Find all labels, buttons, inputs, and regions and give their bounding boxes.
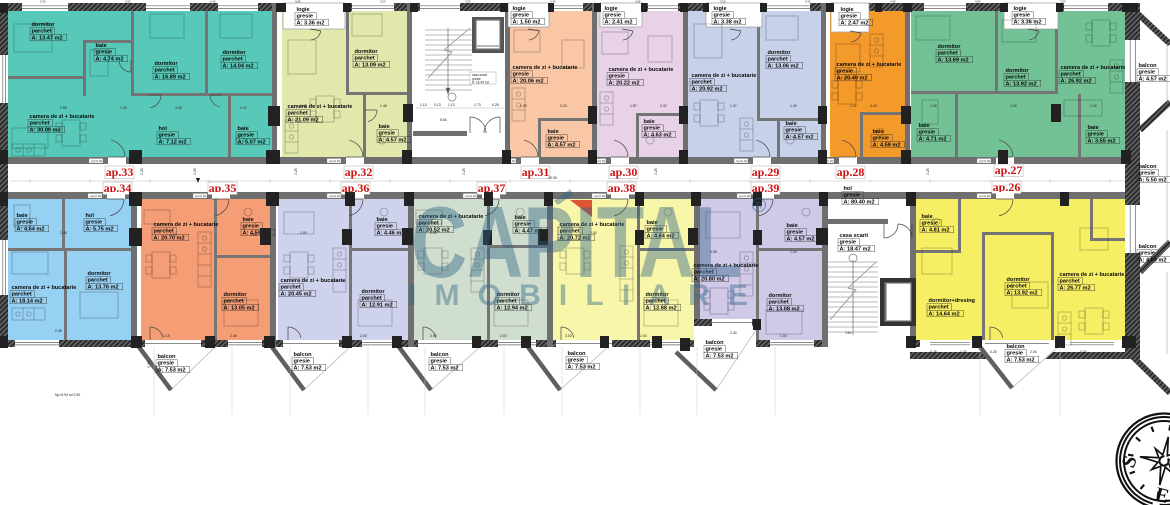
svg-text:1.73: 1.73 xyxy=(474,103,481,107)
svg-text:A: 13.76 m2: A: 13.76 m2 xyxy=(88,284,119,290)
svg-text:0.25: 0.25 xyxy=(294,168,298,175)
svg-text:balcon: balcon xyxy=(1139,164,1158,170)
svg-text:A: 4.57 m2: A: 4.57 m2 xyxy=(786,134,814,140)
svg-text:Vlib: Vlib xyxy=(845,330,852,335)
svg-text:gresie: gresie xyxy=(1088,132,1104,138)
svg-text:A: 7.53 m2: A: 7.53 m2 xyxy=(431,365,459,371)
svg-text:gresie: gresie xyxy=(706,347,722,353)
svg-text:parchet: parchet xyxy=(288,111,308,117)
svg-text:gresie: gresie xyxy=(159,133,175,139)
svg-text:baie: baie xyxy=(17,213,28,219)
svg-text:gresie: gresie xyxy=(644,126,660,132)
svg-text:1.49: 1.49 xyxy=(790,104,797,108)
svg-text:gresie: gresie xyxy=(17,220,33,226)
svg-text:A: 13.08 m2: A: 13.08 m2 xyxy=(769,306,800,312)
svg-text:Ap=0.90: Ap=0.90 xyxy=(329,194,341,198)
svg-text:1.02: 1.02 xyxy=(960,350,967,354)
svg-text:dormitor: dormitor xyxy=(938,44,962,50)
svg-text:A: 20.06 m2: A: 20.06 m2 xyxy=(513,78,544,84)
svg-text:ap.33: ap.33 xyxy=(106,165,134,179)
svg-text:0.23: 0.23 xyxy=(560,104,567,108)
svg-text:gresie: gresie xyxy=(1139,251,1155,257)
svg-text:balcon: balcon xyxy=(158,354,177,360)
svg-text:1.47: 1.47 xyxy=(730,104,737,108)
svg-text:parchet: parchet xyxy=(938,51,958,57)
svg-text:0.25: 0.25 xyxy=(990,350,997,354)
svg-text:gresie: gresie xyxy=(294,359,310,365)
svg-text:balcon: balcon xyxy=(568,351,587,357)
svg-text:A: 3.55 m2: A: 3.55 m2 xyxy=(1088,138,1116,144)
svg-text:2.42: 2.42 xyxy=(660,104,667,108)
svg-text:ap.28: ap.28 xyxy=(837,165,865,179)
svg-text:dormitor: dormitor xyxy=(223,50,247,56)
svg-text:A: 20.22 m2: A: 20.22 m2 xyxy=(609,80,640,86)
svg-text:gresie: gresie xyxy=(297,14,313,20)
svg-text:A: 26.92 m2: A: 26.92 m2 xyxy=(1061,78,1092,84)
svg-text:A: 13.92 m2: A: 13.92 m2 xyxy=(1007,290,1038,296)
svg-text:parchet: parchet xyxy=(30,121,50,127)
svg-text:baie: baie xyxy=(96,43,107,49)
svg-text:dormitor: dormitor xyxy=(768,50,792,56)
svg-text:baie: baie xyxy=(873,129,884,135)
svg-text:baie: baie xyxy=(922,214,933,220)
svg-text:parchet: parchet xyxy=(768,57,788,63)
svg-text:parchet: parchet xyxy=(692,80,712,86)
svg-text:0.25: 0.25 xyxy=(140,168,144,175)
svg-text:ap.27: ap.27 xyxy=(995,163,1023,177)
svg-text:camera de zi + bucatarie: camera de zi + bucatarie xyxy=(30,114,95,120)
svg-text:ap.32: ap.32 xyxy=(345,165,373,179)
svg-text:parchet: parchet xyxy=(32,29,52,35)
svg-text:0.25: 0.25 xyxy=(492,103,499,107)
svg-text:A: 14.04 m2: A: 14.04 m2 xyxy=(223,63,254,69)
svg-text:hol: hol xyxy=(844,186,853,192)
svg-text:1.87: 1.87 xyxy=(630,104,637,108)
svg-text:gresie: gresie xyxy=(1007,351,1023,357)
svg-text:dormitor: dormitor xyxy=(155,61,179,67)
svg-text:gresie: gresie xyxy=(786,128,802,134)
svg-text:hol: hol xyxy=(86,213,95,219)
svg-text:dormitor: dormitor xyxy=(224,292,248,298)
svg-text:A: 7.12 m2: A: 7.12 m2 xyxy=(159,139,187,145)
svg-text:2.43: 2.43 xyxy=(870,104,877,108)
svg-text:baie: baie xyxy=(548,129,559,135)
svg-text:ap.30: ap.30 xyxy=(610,165,638,179)
svg-text:A: 4.57 m2: A: 4.57 m2 xyxy=(787,236,815,242)
svg-text:A: 1.50 m2: A: 1.50 m2 xyxy=(513,19,541,25)
svg-text:2.48: 2.48 xyxy=(55,329,62,333)
svg-text:Ap=0.90: Ap=0.90 xyxy=(979,159,991,163)
svg-text:1.13: 1.13 xyxy=(448,103,455,107)
svg-text:A: 2.41 m2: A: 2.41 m2 xyxy=(605,19,633,25)
svg-text:Ap=0.90: Ap=0.90 xyxy=(329,159,341,163)
svg-text:gresie: gresie xyxy=(1014,13,1030,19)
svg-text:balcon: balcon xyxy=(294,352,313,358)
svg-text:gresie: gresie xyxy=(919,130,935,136)
svg-text:gresie: gresie xyxy=(609,74,625,80)
svg-text:49.50: 49.50 xyxy=(548,176,557,180)
svg-text:A: 4.57 m2: A: 4.57 m2 xyxy=(548,142,576,148)
svg-text:A: 4.69 m2: A: 4.69 m2 xyxy=(1139,257,1167,263)
svg-text:dormitor: dormitor xyxy=(88,271,112,277)
svg-text:Ap=0.90: Ap=0.90 xyxy=(979,194,991,198)
svg-text:A: 13.09 m2: A: 13.09 m2 xyxy=(355,62,386,68)
svg-text:A: 4.59 m2: A: 4.59 m2 xyxy=(873,142,901,148)
svg-text:gresie: gresie xyxy=(841,14,857,20)
svg-text:gresie: gresie xyxy=(844,193,860,199)
svg-text:0.25: 0.25 xyxy=(654,168,658,175)
svg-text:2.00: 2.00 xyxy=(360,334,367,338)
svg-text:parchet: parchet xyxy=(12,292,32,298)
svg-text:dormitor+dresing: dormitor+dresing xyxy=(929,298,976,304)
svg-text:gresie: gresie xyxy=(568,358,584,364)
svg-text:A: 13.47 m2: A: 13.47 m2 xyxy=(32,35,63,41)
svg-text:2.43: 2.43 xyxy=(1090,104,1097,108)
svg-text:1.15: 1.15 xyxy=(170,233,177,237)
svg-text:camera de zi + bucatarie: camera de zi + bucatarie xyxy=(837,62,902,68)
svg-text:gresie: gresie xyxy=(96,50,112,56)
svg-text:baie: baie xyxy=(379,124,390,130)
svg-text:1.28: 1.28 xyxy=(120,106,127,110)
svg-text:parchet: parchet xyxy=(1007,284,1027,290)
svg-text:camera de zi + bucatarie: camera de zi + bucatarie xyxy=(12,285,77,291)
svg-text:parchet: parchet xyxy=(1006,75,1026,81)
svg-text:balcon: balcon xyxy=(1007,344,1026,350)
svg-text:A: 26.77 m2: A: 26.77 m2 xyxy=(1060,285,1091,291)
svg-text:0.25: 0.25 xyxy=(193,168,197,175)
svg-text:A: 7.53 m2: A: 7.53 m2 xyxy=(158,367,186,373)
svg-text:A: 4.74 m2: A: 4.74 m2 xyxy=(96,56,124,62)
svg-text:3.00: 3.00 xyxy=(565,334,572,338)
svg-text:A: 4.63 m2: A: 4.63 m2 xyxy=(644,132,672,138)
svg-text:logie: logie xyxy=(297,7,310,13)
svg-text:camera de zi + bucatarie: camera de zi + bucatarie xyxy=(288,104,353,110)
svg-text:gresie: gresie xyxy=(840,240,856,246)
svg-text:gresie: gresie xyxy=(513,72,529,78)
svg-text:1.09: 1.09 xyxy=(790,250,797,254)
svg-text:logie: logie xyxy=(513,6,526,12)
svg-text:1.04: 1.04 xyxy=(780,334,787,338)
svg-text:A: 7.53 m2: A: 7.53 m2 xyxy=(568,364,596,370)
svg-text:logie: logie xyxy=(605,6,618,12)
svg-text:A: 16.89 m2: A: 16.89 m2 xyxy=(155,74,186,80)
svg-text:gresie: gresie xyxy=(431,359,447,365)
svg-text:parchet: parchet xyxy=(1061,72,1081,78)
svg-text:Ap=0.90: Ap=0.90 xyxy=(91,159,103,163)
svg-text:gresie: gresie xyxy=(873,136,889,142)
svg-text:balcon: balcon xyxy=(1139,244,1158,250)
svg-text:Ap=0.90: Ap=0.90 xyxy=(195,194,207,198)
svg-text:gresie: gresie xyxy=(1139,171,1155,177)
svg-text:camera de zi + bucatarie: camera de zi + bucatarie xyxy=(609,67,674,73)
svg-text:parchet: parchet xyxy=(1060,279,1080,285)
svg-text:gresie: gresie xyxy=(787,230,803,236)
svg-text:R: R xyxy=(756,201,763,211)
svg-text:A: 20.92 m2: A: 20.92 m2 xyxy=(692,86,723,92)
svg-text:gresie: gresie xyxy=(377,224,393,230)
svg-text:logie: logie xyxy=(1014,6,1027,12)
svg-text:A: 7.53 m2: A: 7.53 m2 xyxy=(706,353,734,359)
svg-text:1.48: 1.48 xyxy=(380,104,387,108)
svg-text:A: 4.57 m2: A: 4.57 m2 xyxy=(1139,76,1167,82)
svg-text:dormitor: dormitor xyxy=(355,49,379,55)
svg-text:baie: baie xyxy=(786,121,797,127)
svg-text:2.48: 2.48 xyxy=(60,231,67,235)
svg-text:A: 7.53 m2: A: 7.53 m2 xyxy=(294,365,322,371)
svg-text:parchet: parchet xyxy=(281,285,301,291)
svg-text:baie: baie xyxy=(644,119,655,125)
svg-text:gresie: gresie xyxy=(513,13,529,19)
svg-text:ap.31: ap.31 xyxy=(522,165,550,179)
svg-text:A: 7.53 m2: A: 7.53 m2 xyxy=(1007,357,1035,363)
svg-text:parchet: parchet xyxy=(929,305,949,311)
svg-text:A: 13.92 m2: A: 13.92 m2 xyxy=(1006,81,1037,87)
svg-text:baie: baie xyxy=(1088,125,1099,131)
svg-text:A: 12.91 m2: A: 12.91 m2 xyxy=(362,302,393,308)
svg-text:A: 4.71 m2: A: 4.71 m2 xyxy=(919,136,947,142)
svg-text:gresie: gresie xyxy=(714,13,730,19)
svg-text:0.25: 0.25 xyxy=(462,168,466,175)
svg-text:A: 5.50 m2: A: 5.50 m2 xyxy=(1139,177,1167,183)
svg-text:3.05: 3.05 xyxy=(175,106,182,110)
svg-text:A: 5.07 m2: A: 5.07 m2 xyxy=(238,139,266,145)
svg-text:2.04: 2.04 xyxy=(1030,350,1037,354)
svg-text:2.47: 2.47 xyxy=(240,106,247,110)
svg-text:balcon: balcon xyxy=(1139,63,1158,69)
svg-text:logie: logie xyxy=(714,6,727,12)
svg-text:A: 20.45 m2: A: 20.45 m2 xyxy=(281,291,312,297)
svg-text:A: 3.36 m2: A: 3.36 m2 xyxy=(297,20,325,26)
svg-text:camera de zi + bucatarie: camera de zi + bucatarie xyxy=(1060,272,1125,278)
svg-text:2.00: 2.00 xyxy=(1010,104,1017,108)
svg-text:parchet: parchet xyxy=(355,56,375,62)
svg-text:dormitor: dormitor xyxy=(769,293,793,299)
svg-text:2.00: 2.00 xyxy=(640,334,647,338)
svg-text:camera de zi + bucatarie: camera de zi + bucatarie xyxy=(154,222,219,228)
svg-text:5.64: 5.64 xyxy=(440,118,447,122)
svg-text:Np=9.94 m+2.50: Np=9.94 m+2.50 xyxy=(55,393,80,397)
svg-text:gresie: gresie xyxy=(243,224,259,230)
svg-text:hol: hol xyxy=(159,126,168,132)
svg-text:gresie: gresie xyxy=(605,13,621,19)
svg-text:0.25: 0.25 xyxy=(926,168,930,175)
svg-text:2.00: 2.00 xyxy=(300,231,307,235)
svg-text:balcon: balcon xyxy=(431,352,450,358)
svg-text:1.15: 1.15 xyxy=(163,334,170,338)
svg-text:0.25: 0.25 xyxy=(930,350,937,354)
svg-text:dormitor: dormitor xyxy=(362,289,386,295)
svg-text:A: 2.47 m2: A: 2.47 m2 xyxy=(841,20,869,26)
svg-text:dormitor: dormitor xyxy=(1006,68,1030,74)
svg-text:Ap=0.90: Ap=0.90 xyxy=(90,194,102,198)
svg-text:gresie: gresie xyxy=(86,220,102,226)
svg-text:balcon: balcon xyxy=(706,340,725,346)
svg-text:0.13: 0.13 xyxy=(434,103,441,107)
svg-text:camera de zi + bucatarie: camera de zi + bucatarie xyxy=(692,73,757,79)
svg-text:logie: logie xyxy=(841,7,854,13)
svg-text:gresie: gresie xyxy=(158,361,174,367)
svg-text:2.43: 2.43 xyxy=(300,104,307,108)
svg-text:0.30: 0.30 xyxy=(1080,350,1087,354)
svg-text:A: 4.46 m2: A: 4.46 m2 xyxy=(377,230,405,236)
svg-text:A: 13.69 m2: A: 13.69 m2 xyxy=(938,57,969,63)
svg-text:baie: baie xyxy=(238,126,249,132)
svg-text:gresie: gresie xyxy=(1139,70,1155,76)
svg-text:A: 18.47 m2: A: 18.47 m2 xyxy=(840,246,871,252)
svg-text:A: 18.45 m2: A: 18.45 m2 xyxy=(472,81,489,85)
svg-text:baie: baie xyxy=(787,223,798,229)
svg-text:A: 4.57 m2: A: 4.57 m2 xyxy=(379,137,407,143)
svg-text:ap.29: ap.29 xyxy=(752,165,780,179)
svg-text:2.40: 2.40 xyxy=(730,331,737,335)
svg-text:Ap=0.90: Ap=0.90 xyxy=(736,159,748,163)
svg-text:parchet: parchet xyxy=(362,296,382,302)
svg-text:2.00: 2.00 xyxy=(500,334,507,338)
svg-text:parchet: parchet xyxy=(155,68,175,74)
svg-text:2.98: 2.98 xyxy=(60,106,67,110)
svg-text:1.47: 1.47 xyxy=(850,104,857,108)
svg-text:0.90: 0.90 xyxy=(250,233,257,237)
svg-text:baie: baie xyxy=(243,217,254,223)
svg-text:1.13: 1.13 xyxy=(420,103,427,107)
svg-text:parchet: parchet xyxy=(223,57,243,63)
svg-text:1.40: 1.40 xyxy=(520,104,527,108)
svg-text:A: 13.05 m2: A: 13.05 m2 xyxy=(224,305,255,311)
svg-text:casa scarii: casa scarii xyxy=(840,233,869,239)
svg-text:A: 13.06 m2: A: 13.06 m2 xyxy=(768,63,799,69)
svg-text:A: 80.40 m2: A: 80.40 m2 xyxy=(844,199,875,205)
svg-text:3.00: 3.00 xyxy=(430,334,437,338)
svg-text:A: 5.75 m2: A: 5.75 m2 xyxy=(86,226,114,232)
svg-text:A: 4.81 m2: A: 4.81 m2 xyxy=(922,227,950,233)
svg-text:A: 14.64 m2: A: 14.64 m2 xyxy=(929,311,960,317)
svg-text:1.49: 1.49 xyxy=(930,104,937,108)
svg-text:parchet: parchet xyxy=(88,278,108,284)
svg-text:parchet: parchet xyxy=(769,300,789,306)
svg-text:A: 18.14 m2: A: 18.14 m2 xyxy=(12,298,43,304)
svg-text:2.48: 2.48 xyxy=(230,334,237,338)
svg-text:baie: baie xyxy=(377,217,388,223)
svg-text:3.30: 3.30 xyxy=(147,361,151,368)
